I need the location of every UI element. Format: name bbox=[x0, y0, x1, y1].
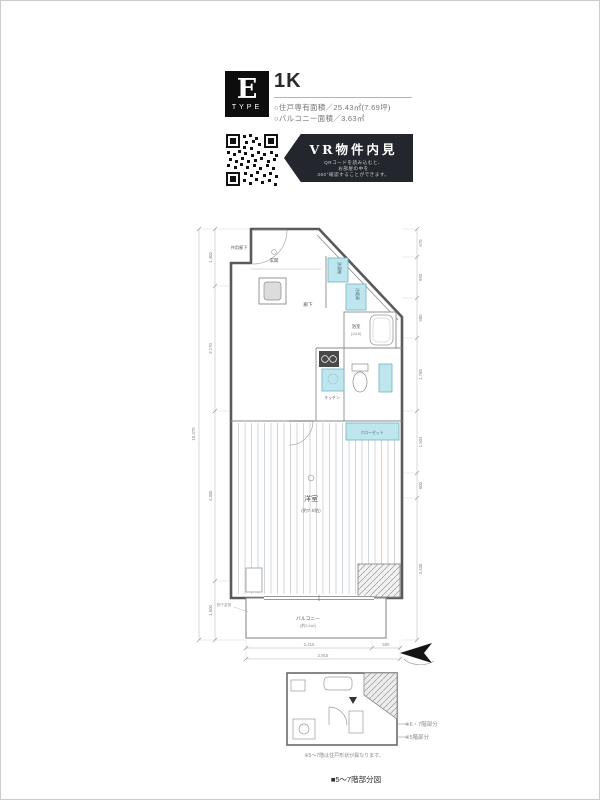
kitchen-sink bbox=[322, 369, 344, 391]
laundry-pole-label: 物干金物 bbox=[217, 602, 232, 607]
dim-right-4: 1,503 bbox=[418, 436, 423, 447]
dim-left-2: 4,300 bbox=[208, 490, 213, 501]
hatched-area bbox=[358, 564, 400, 597]
dim-left-0: 1,400 bbox=[208, 252, 213, 263]
sub-plan-callout-2: ※5階部分 bbox=[405, 733, 429, 741]
type-letter: E bbox=[237, 77, 258, 103]
vanity bbox=[379, 364, 392, 392]
washer-space: 洗濯機 bbox=[328, 258, 348, 282]
balcony-label: バルコニー bbox=[296, 616, 320, 622]
fridge-label: 冷蔵庫 bbox=[355, 288, 361, 300]
type-logo: E TYPE bbox=[225, 71, 269, 117]
vr-title: VR物件内見 bbox=[309, 139, 397, 158]
dim-left-3: 1,500 bbox=[208, 605, 213, 616]
entrance-label: 玄関 bbox=[270, 257, 279, 264]
closet-label: クローゼット bbox=[360, 430, 383, 435]
dim-bottom-1: 500 bbox=[382, 642, 390, 647]
dim-right-2: 980 bbox=[418, 314, 423, 322]
bathroom-size-label: (1116) bbox=[351, 332, 362, 336]
sub-plan-caption: ■5〜7階部分図 bbox=[296, 774, 416, 785]
kitchen-label: キッチン bbox=[324, 395, 340, 400]
dim-right-1: 990 bbox=[418, 273, 423, 281]
room-size-label: (約7.5帖) bbox=[301, 507, 321, 514]
washer-label: 洗濯機 bbox=[337, 262, 343, 274]
main-floor-plan: 共用廊下 玄関 廊下 洗濯機 冷蔵庫 bbox=[186, 216, 446, 671]
dim-right-0: 670 bbox=[418, 239, 423, 247]
dim-bottom-0: 2,415 bbox=[304, 642, 315, 647]
balcony: バルコニー (約3.6㎡) 物干金物 bbox=[217, 595, 386, 638]
floorplan-page: E TYPE 1K ○住戸専有面積／25.43㎡(7.69坪) ○バルコニー面積… bbox=[0, 0, 600, 800]
vr-banner: VR物件内見 QRコードを読み込むと、 お部屋の中を 360°確認することができ… bbox=[284, 134, 413, 182]
type-word: TYPE bbox=[232, 104, 262, 111]
bathtub bbox=[370, 315, 393, 345]
balcony-area-text: ○バルコニー面積／3.63㎡ bbox=[274, 113, 365, 124]
room-label: 洋室 bbox=[304, 494, 318, 503]
corridor-label: 共用廊下 bbox=[231, 244, 248, 251]
plan-type-label: 1K bbox=[274, 70, 302, 93]
hallway-label: 廊下 bbox=[303, 301, 313, 308]
dim-bottom-total: 2,915 bbox=[318, 653, 329, 658]
dim-right-3: 1,780 bbox=[418, 369, 423, 380]
pillar bbox=[246, 568, 262, 592]
stove bbox=[319, 351, 339, 367]
meter-box bbox=[259, 278, 286, 304]
dim-right-6: 3,430 bbox=[418, 563, 423, 574]
bathroom-label: 浴室 bbox=[352, 323, 361, 330]
fridge-space: 冷蔵庫 bbox=[346, 284, 366, 310]
qr-code bbox=[225, 133, 279, 187]
toilet bbox=[352, 364, 368, 392]
vr-subtitle-3: 360°確認することができます。 bbox=[317, 172, 389, 178]
sub-plan-callout-1: ※6・7階部分 bbox=[405, 720, 438, 728]
header-divider bbox=[274, 97, 412, 98]
sub-plan-note: ※5〜7階は住戸形状が異なります。 bbox=[296, 752, 392, 759]
dim-left-total: 10,370 bbox=[191, 427, 196, 441]
dim-left-1: 3,170 bbox=[208, 343, 213, 354]
unit-area-text: ○住戸専有面積／25.43㎡(7.69坪) bbox=[274, 102, 391, 113]
north-arrow-icon bbox=[394, 637, 438, 671]
bathroom: 浴室 (1116) bbox=[344, 312, 396, 348]
sub-floor-plan bbox=[269, 667, 409, 757]
closet: クローゼット bbox=[346, 423, 399, 440]
dim-right-5: 600 bbox=[418, 481, 423, 489]
balcony-size-label: (約3.6㎡) bbox=[300, 623, 316, 628]
